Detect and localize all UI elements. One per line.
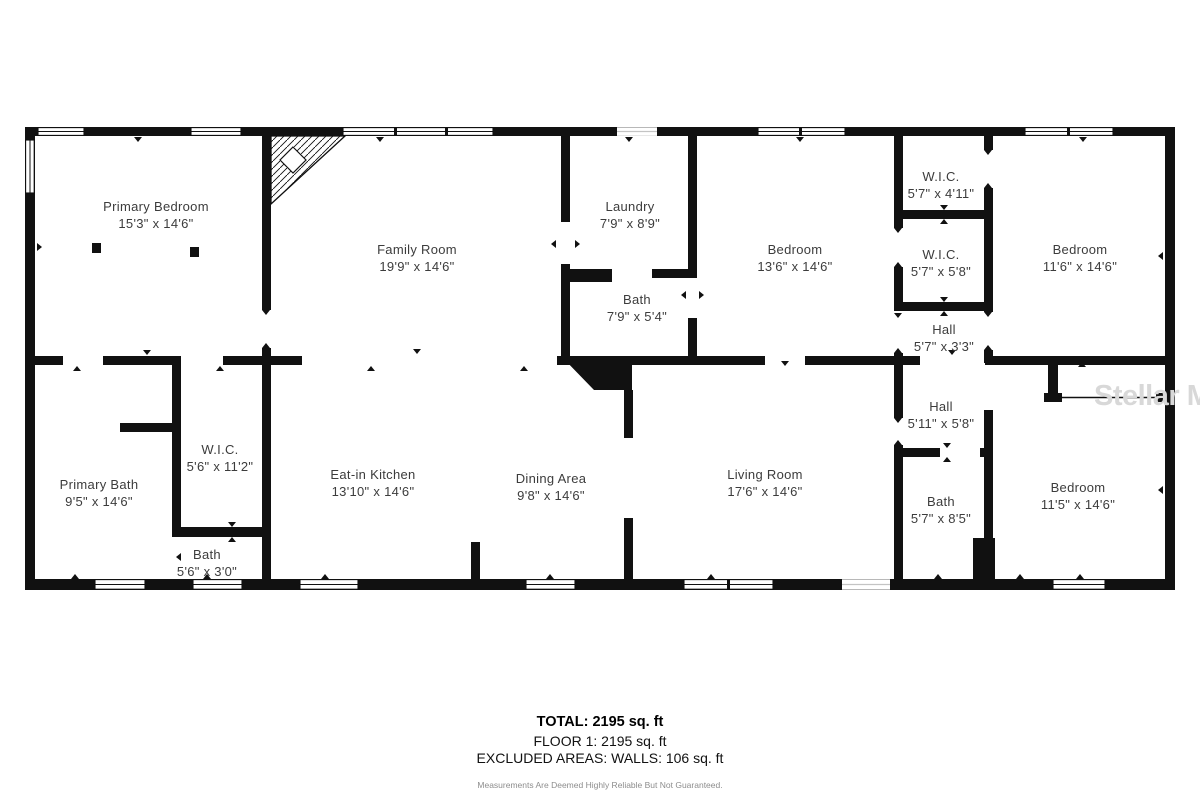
window: [343, 128, 493, 136]
walls: [25, 127, 1175, 590]
window: [1053, 580, 1105, 590]
window: [526, 580, 575, 590]
door-opening: [842, 579, 890, 589]
window: [193, 580, 242, 590]
floor-area-text: FLOOR 1: 2195 sq. ft: [0, 733, 1200, 749]
corner-hatch: [271, 136, 345, 204]
floorplan-page: Primary Bedroom 15'3" x 14'6" Family Roo…: [0, 0, 1200, 800]
measurement-disclaimer: Measurements Are Deemed Highly Reliable …: [0, 780, 1200, 790]
total-area-text: TOTAL: 2195 sq. ft: [0, 714, 1200, 730]
window: [684, 580, 773, 590]
window: [1025, 128, 1113, 136]
stellar-mls-watermark: Stellar MLS: [1094, 380, 1200, 413]
window: [26, 140, 35, 193]
excluded-area-text: EXCLUDED AREAS: WALLS: 106 sq. ft: [0, 750, 1200, 766]
window: [95, 580, 145, 590]
floorplan-drawing: [0, 0, 1200, 800]
window: [191, 128, 241, 136]
window: [38, 128, 84, 136]
window: [300, 580, 358, 590]
door-opening: [617, 127, 657, 136]
window: [758, 128, 845, 136]
